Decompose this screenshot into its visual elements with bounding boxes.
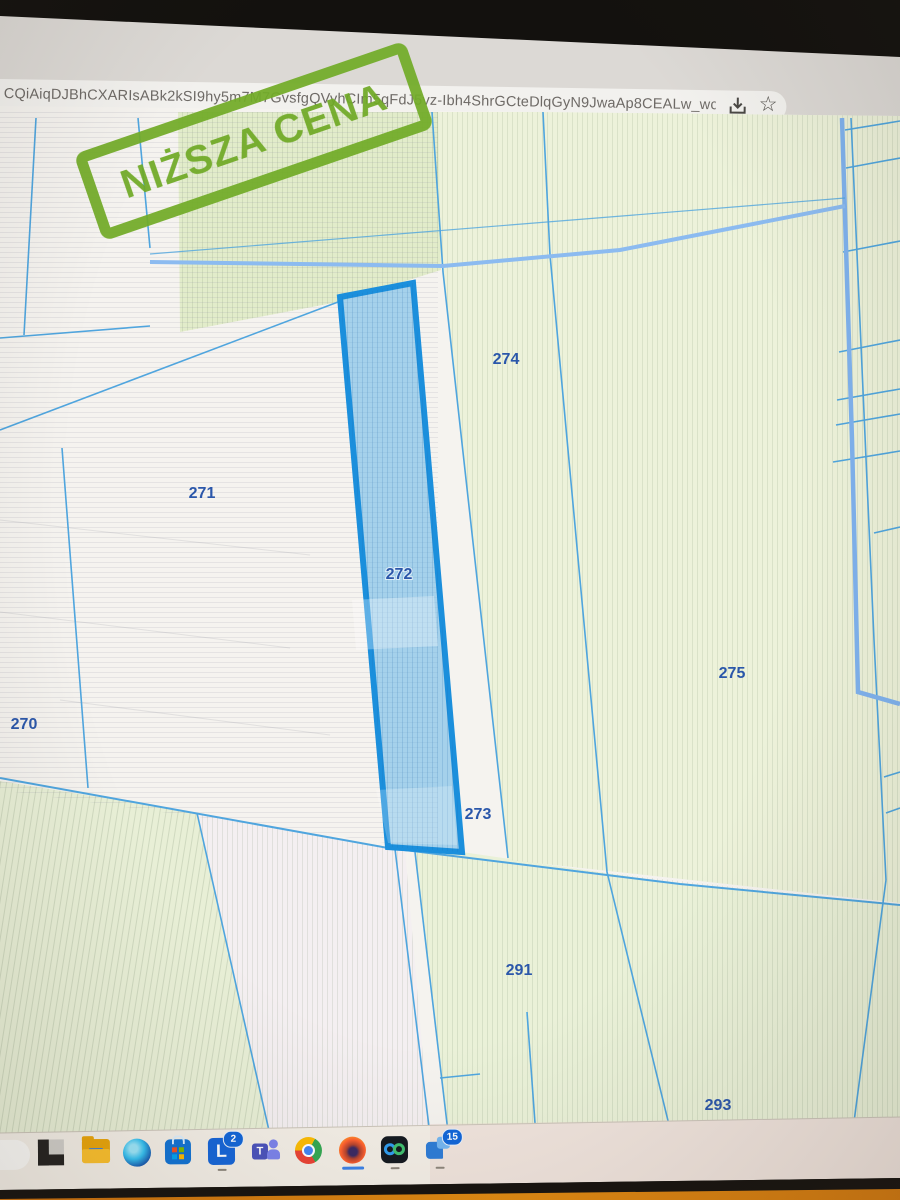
parcel-label-275: 275 <box>719 665 746 682</box>
bookmark-star-icon[interactable]: ☆ <box>759 92 778 118</box>
teams-person-head <box>269 1139 278 1148</box>
lex-app-icon[interactable]: L 2 <box>208 1138 235 1165</box>
edge-browser-icon[interactable] <box>123 1139 151 1167</box>
folder-tab <box>82 1136 94 1142</box>
firefox-active-indicator <box>342 1167 364 1170</box>
parcel-label-293: 293 <box>705 1097 732 1114</box>
photo-of-monitor: 270 271 272 273 274 275 291 293 CQiAiqDJ… <box>0 0 900 1200</box>
chat-app-icon[interactable]: 15 <box>426 1136 454 1163</box>
parcel-label-270: 270 <box>11 716 38 733</box>
file-explorer-icon[interactable] <box>82 1139 110 1163</box>
taskbar-icons: L 2 T 15 <box>0 1133 520 1172</box>
chat-running-indicator <box>436 1166 445 1169</box>
store-window-grid <box>172 1147 177 1152</box>
lex-running-indicator <box>217 1168 226 1171</box>
parcel-label-291: 291 <box>506 962 533 979</box>
microsoft-store-icon[interactable] <box>165 1139 191 1164</box>
texture-right <box>432 112 900 903</box>
download-icon[interactable] <box>727 94 749 116</box>
chrome-icon[interactable] <box>295 1137 322 1164</box>
parcel-label-271: 271 <box>189 485 216 502</box>
folder-front <box>82 1149 110 1163</box>
chat-badge: 15 <box>442 1129 463 1146</box>
parcel-label-274: 274 <box>493 351 520 368</box>
parcel-label-272: 272 <box>386 566 413 583</box>
teams-t-box: T <box>252 1143 268 1159</box>
firefox-icon[interactable] <box>339 1136 366 1163</box>
window-app-icon[interactable] <box>38 1139 64 1165</box>
lex-badge: 2 <box>223 1131 244 1148</box>
dark-app-running-indicator <box>390 1167 399 1170</box>
cadastral-map[interactable]: 270 271 272 273 274 275 291 293 <box>0 104 900 1140</box>
dark-rings-app-icon[interactable] <box>381 1136 408 1163</box>
start-button[interactable] <box>0 1140 30 1170</box>
parcel-label-273: 273 <box>465 806 492 823</box>
teams-icon[interactable]: T <box>252 1139 280 1163</box>
chrome-center <box>302 1144 315 1157</box>
teams-person-body <box>267 1149 280 1159</box>
ring-green <box>393 1143 405 1155</box>
store-bag-handle <box>172 1135 185 1144</box>
